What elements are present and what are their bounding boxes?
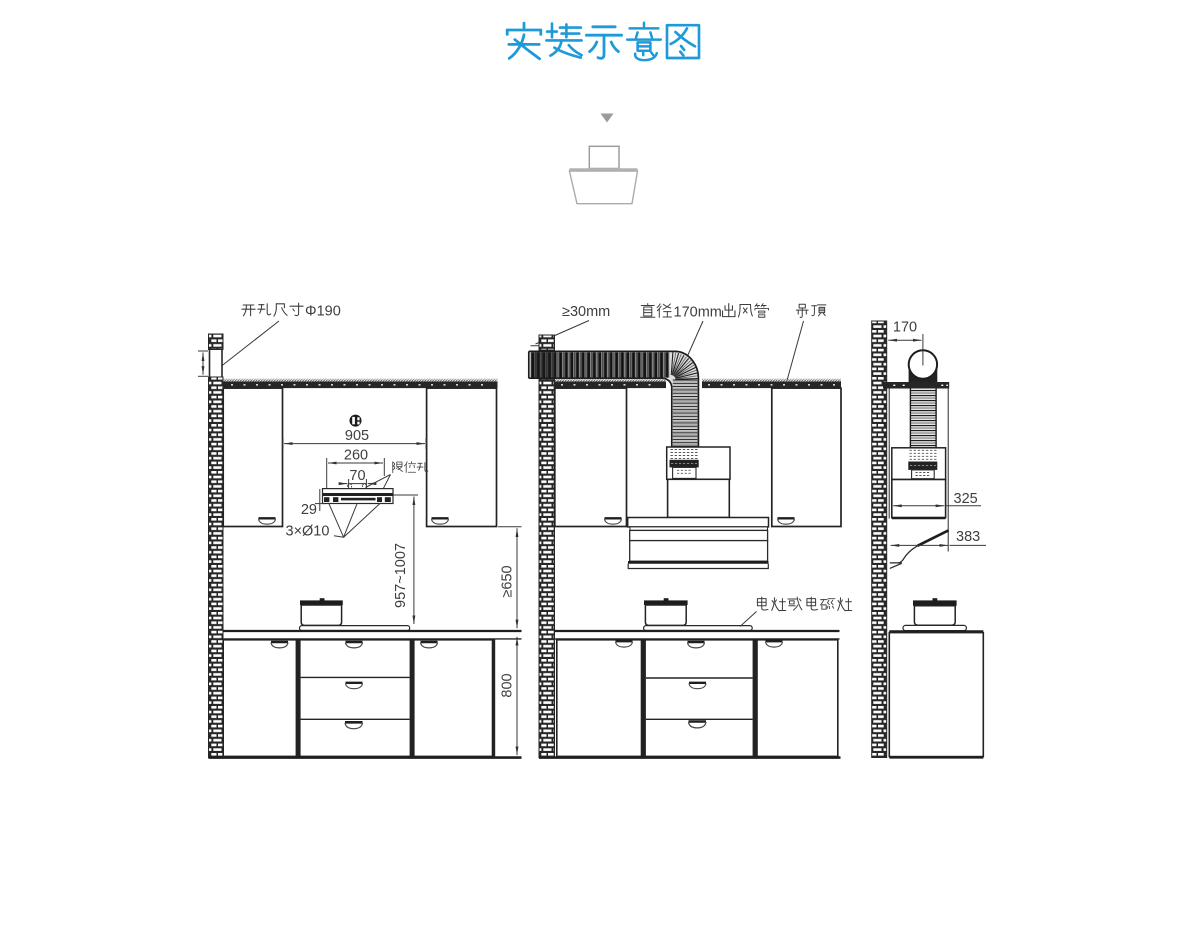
svg-text:3×Ø10: 3×Ø10: [286, 524, 330, 540]
svg-text:70: 70: [349, 468, 365, 484]
svg-text:≥650: ≥650: [500, 565, 516, 597]
svg-text:29: 29: [301, 502, 317, 518]
svg-text:170: 170: [893, 320, 917, 336]
svg-text:383: 383: [956, 529, 980, 545]
svg-text:800: 800: [500, 673, 516, 697]
svg-text:260: 260: [344, 447, 368, 463]
svg-text:≥30mm: ≥30mm: [562, 304, 610, 320]
svg-text:Φ190: Φ190: [305, 304, 341, 320]
svg-text:957~1007: 957~1007: [393, 543, 409, 608]
svg-text:325: 325: [954, 491, 978, 507]
svg-text:170mm: 170mm: [674, 305, 722, 321]
svg-text:905: 905: [345, 428, 369, 444]
